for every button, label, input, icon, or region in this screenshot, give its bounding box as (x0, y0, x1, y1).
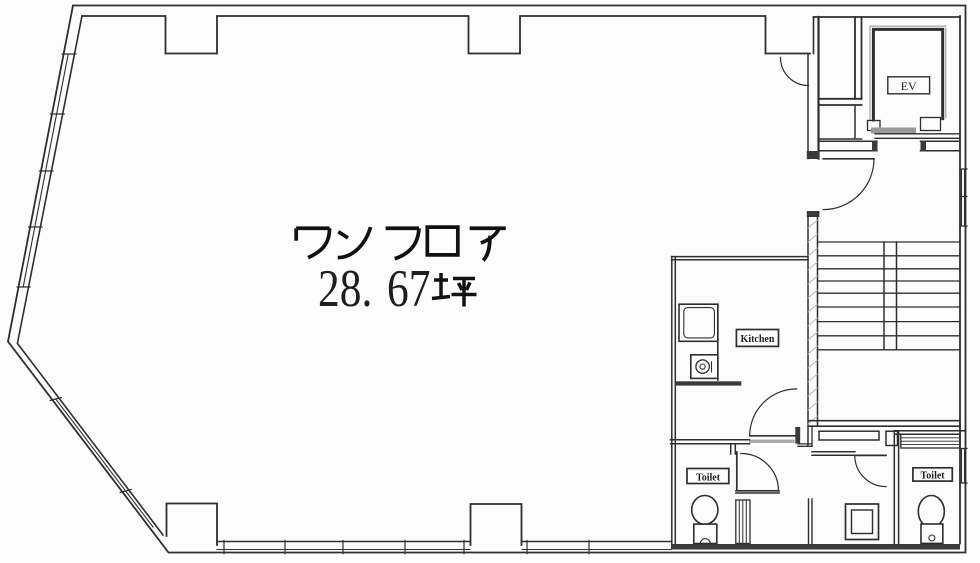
svg-text:Toilet: Toilet (696, 473, 721, 484)
svg-text:EV: EV (901, 79, 917, 93)
svg-text:67: 67 (387, 260, 430, 318)
svg-text:28.: 28. (318, 260, 372, 318)
svg-text:Kitchen: Kitchen (741, 334, 775, 345)
svg-text:Toilet: Toilet (921, 471, 946, 482)
